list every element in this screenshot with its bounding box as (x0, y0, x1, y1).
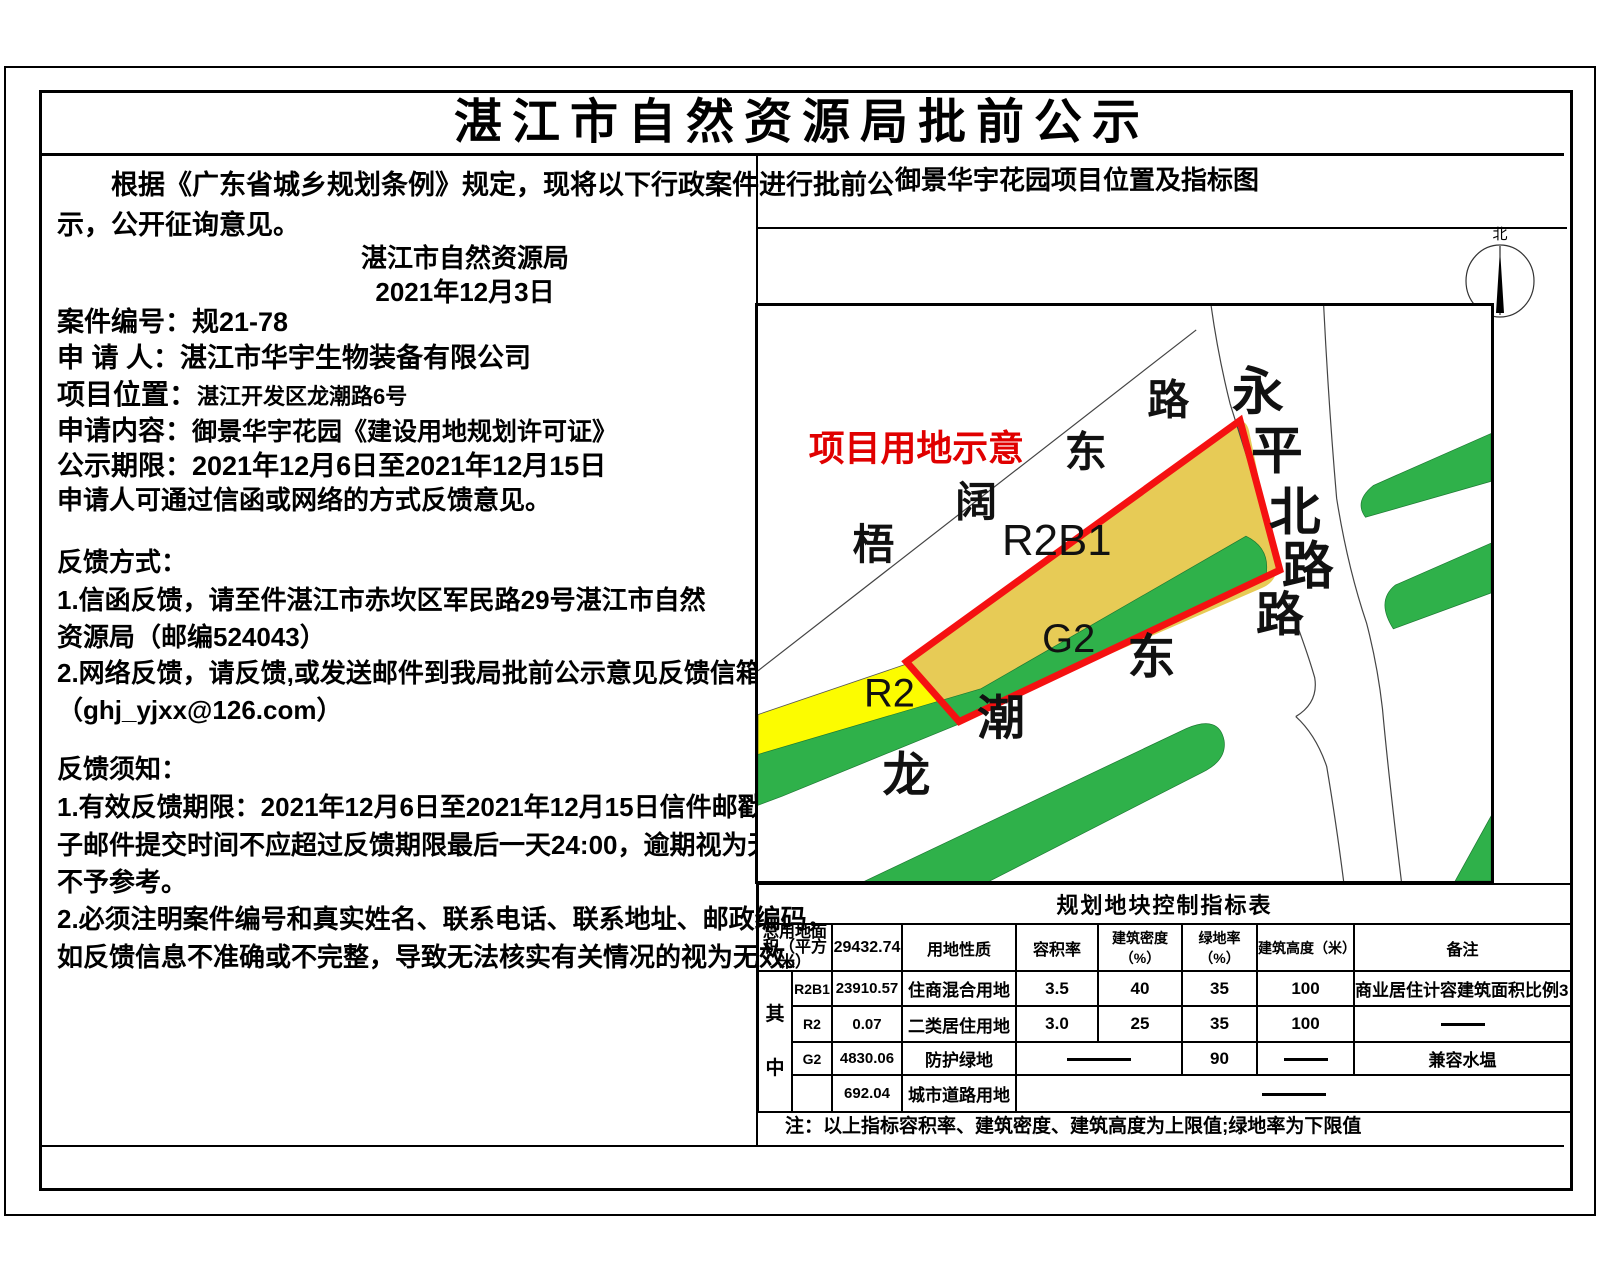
field-label: 申 请 人： (57, 336, 180, 375)
table-row: R2 0.07 二类居住用地 3.0 25 35 100 (758, 1006, 1571, 1042)
road-char: 平 (1251, 423, 1303, 480)
among-label: 其中 (765, 988, 786, 1094)
note1-line1: 1.有效反馈期限：2021年12月6日至2021年12月15日信件邮戳日或电 (57, 787, 842, 824)
intro-line-2: 示，公开征询意见。 (57, 203, 300, 242)
field-value: 2021年12月6日至2021年12月15日 (192, 444, 606, 483)
road-char: 龙 (882, 749, 930, 802)
green-cell: 35 (1182, 1006, 1257, 1042)
site-map: 项目用地示意 R2B1 G2 R2 梧 阔 东 路 永 平 北 路 龙 潮 东 … (755, 303, 1494, 884)
col-land-nature: 用地性质 (902, 924, 1016, 971)
total-area-value: 29432.74 (832, 924, 902, 971)
dash-placeholder (1067, 1058, 1131, 1061)
height-cell: 100 (1257, 971, 1354, 1006)
map-title: 御景华宇花园项目位置及指标图 (757, 160, 1397, 197)
footer-divider (42, 1145, 1564, 1147)
nature-cell: 二类居住用地 (902, 1006, 1016, 1042)
field-content: 申请内容： 御景华宇花园《建设用地规划许可证》 (57, 409, 617, 448)
field-label: 项目位置： (57, 373, 197, 413)
road-char: 永 (1232, 364, 1284, 422)
remark-cell: 商业居住计容建筑面积比例3：7 (1354, 971, 1571, 1006)
note1-line3: 不予参考。 (57, 862, 187, 899)
road-char: 梧 (853, 522, 895, 569)
compass-label: 北 (1492, 226, 1507, 243)
field-value: 御景华宇花园《建设用地规划许可证》 (192, 412, 617, 448)
remark-cell: 兼容水塭 (1354, 1042, 1571, 1075)
field-case-number: 案件编号： 规21-78 (57, 300, 288, 339)
feedback-way1-line2: 资源局（邮编524043） (57, 617, 326, 654)
road-char: 潮 (977, 692, 1025, 745)
field-label: 申请内容： (57, 409, 192, 448)
dash-placeholder (1441, 1023, 1485, 1026)
road-char: 东 (1127, 632, 1175, 685)
table-row: 其中 R2B1 23910.57 住商混合用地 3.5 40 35 100 商业… (758, 971, 1571, 1006)
field-value: 湛江市华宇生物装备有限公司 (180, 336, 531, 375)
col-building-height: 建筑高度（米） (1257, 924, 1354, 971)
far-density-cell (1016, 1042, 1182, 1075)
feedback-email: （ghj_yjxx@126.com） (57, 690, 342, 727)
far-cell: 3.0 (1016, 1006, 1098, 1042)
dash-placeholder (1262, 1093, 1326, 1096)
page-title: 湛江市自然资源局批前公示 (42, 93, 1562, 153)
table-title: 规划地块控制指标表 (758, 884, 1571, 924)
field-value: 湛江开发区龙潮路6号 (197, 379, 407, 411)
field-period: 公示期限： 2021年12月6日至2021年12月15日 (57, 444, 606, 483)
height-cell: 100 (1257, 1006, 1354, 1042)
road-char: 北 (1269, 485, 1321, 542)
road-char: 阔 (955, 479, 997, 526)
map-title-divider (757, 227, 1567, 229)
road-char: 路 (1147, 378, 1189, 425)
green-cell: 35 (1182, 971, 1257, 1006)
dash-placeholder (1284, 1058, 1328, 1061)
parcel-g2-label: G2 (1042, 617, 1095, 661)
field-label: 公示期限： (57, 444, 192, 483)
title-divider (42, 153, 1564, 156)
project-annotation: 项目用地示意 (809, 428, 1024, 468)
among-cell: 其中 (758, 971, 792, 1112)
field-label: 案件编号： (57, 300, 192, 339)
feedback-way2-line1: 2.网络反馈，请反馈,或发送邮件到我局批前公示意见反馈信箱 (57, 653, 762, 690)
road-char: 路 (1256, 589, 1304, 642)
area-cell: 0.07 (832, 1006, 902, 1042)
field-location: 项目位置： 湛江开发区龙潮路6号 (57, 373, 407, 413)
parcel-r2-label: R2 (864, 672, 915, 716)
height-cell (1257, 1042, 1354, 1075)
area-cell: 23910.57 (832, 971, 902, 1006)
area-cell: 4830.06 (832, 1042, 902, 1075)
road-char: 东 (1065, 429, 1107, 476)
field-value: 规21-78 (192, 300, 288, 339)
table-note: 注：以上指标容积率、建筑密度、建筑高度为上限值;绿地率为下限值 (757, 1103, 1570, 1145)
col-total-area: 总用地面积（平方米） (758, 924, 832, 971)
code-cell: R2B1 (792, 971, 832, 1006)
nature-cell: 住商混合用地 (902, 971, 1016, 1006)
parcel-r2b1-label: R2B1 (1002, 516, 1112, 565)
note2-line1: 2.必须注明案件编号和真实姓名、联系电话、联系地址、邮政编码， (57, 899, 833, 936)
nature-cell: 防护绿地 (902, 1042, 1016, 1075)
note1-line2: 子邮件提交时间不应超过反馈期限最后一天24:00，逾期视为无效， (57, 825, 826, 862)
col-far: 容积率 (1016, 924, 1098, 971)
feedback-notes-title: 反馈须知： (57, 749, 187, 786)
feedback-ways-title: 反馈方式： (57, 542, 187, 579)
issuing-org: 湛江市自然资源局 (120, 238, 810, 275)
green-cell: 90 (1182, 1042, 1257, 1075)
note2-line2: 如反馈信息不准确或不完整，导致无法核实有关情况的视为无效。 (57, 937, 811, 974)
field-applicant: 申 请 人： 湛江市华宇生物装备有限公司 (57, 336, 531, 375)
feedback-hint: 申请人可通过信函或网络的方式反馈意见。 (57, 480, 551, 517)
col-green-ratio: 绿地率（%） (1182, 924, 1257, 971)
road-char: 路 (1282, 538, 1334, 596)
plot-control-indicator-table: 规划地块控制指标表 总用地面积（平方米） 29432.74 用地性质 容积率 建… (757, 883, 1572, 1113)
feedback-way1-line1: 1.信函反馈，请至件湛江市赤坎区军民路29号湛江市自然 (57, 580, 706, 617)
code-cell: R2 (792, 1006, 832, 1042)
density-cell: 40 (1098, 971, 1182, 1006)
code-cell: G2 (792, 1042, 832, 1075)
col-building-density: 建筑密度（%） (1098, 924, 1182, 971)
col-remark: 备注 (1354, 924, 1571, 971)
remark-cell (1354, 1006, 1571, 1042)
table-row: G2 4830.06 防护绿地 90 兼容水塭 (758, 1042, 1571, 1075)
far-cell: 3.5 (1016, 971, 1098, 1006)
density-cell: 25 (1098, 1006, 1182, 1042)
